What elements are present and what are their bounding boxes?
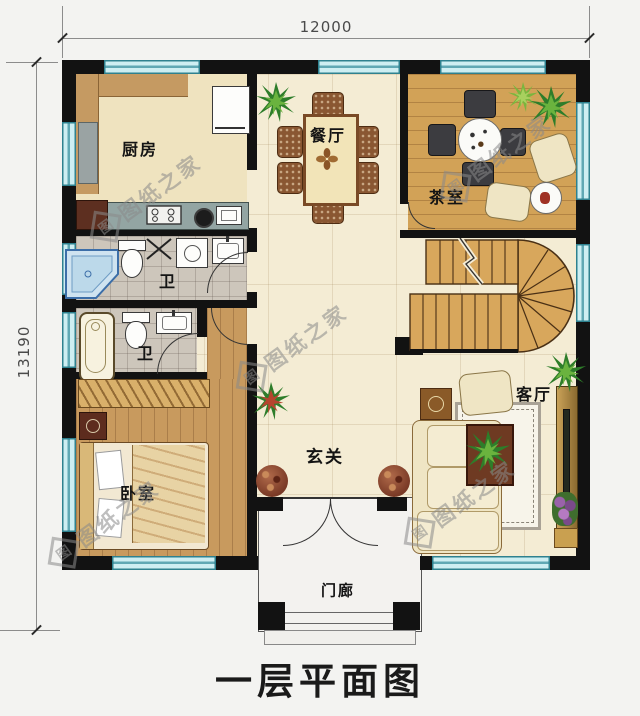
- kitchen-sink: [216, 206, 242, 225]
- wall-hall-west-a: [247, 228, 257, 252]
- entry-shrub: [256, 465, 288, 497]
- living-armchair: [458, 369, 514, 416]
- dimension-ext-left-top: [6, 62, 58, 63]
- window-tea-right: [576, 102, 590, 200]
- staircase: [408, 238, 576, 360]
- wall-entry-jamb-right: [377, 497, 407, 511]
- entry-shrub: [378, 465, 410, 497]
- bath-upper-label: 卫: [159, 268, 177, 292]
- dining-chair: [277, 126, 303, 158]
- tea-armchair: [484, 181, 533, 223]
- dining-chair: [277, 162, 303, 194]
- floor-plan-canvas: 厨房 餐厅 茶室: [0, 0, 640, 716]
- wall-entry-jamb-left: [256, 497, 283, 511]
- hall-console: [554, 528, 578, 548]
- window-bedroom-left: [62, 438, 76, 532]
- bath-lower-label: 卫: [137, 340, 155, 364]
- plan-title: 一层平面图: [215, 651, 425, 705]
- dining-label: 餐厅: [310, 122, 346, 146]
- porch-lower-step: [264, 630, 416, 645]
- entry-hall-label: 玄关: [306, 443, 344, 468]
- wall-hall-west-b: [247, 292, 257, 308]
- floor-drain-icon: [146, 238, 172, 260]
- shower-corner: [64, 248, 120, 300]
- window-tea-top: [440, 60, 546, 74]
- porch-column-left: [258, 602, 285, 630]
- living-side-table: [420, 388, 452, 420]
- window-bedroom-bottom: [112, 556, 216, 570]
- window-kitchen-left: [62, 122, 76, 186]
- wall-bath-lower-east-a: [197, 308, 207, 337]
- toilet-upper-bowl: [121, 249, 143, 278]
- bath-lower-sink: [156, 312, 192, 334]
- tea-chair: [428, 124, 456, 156]
- kitchen-cabinet-left: [78, 122, 98, 184]
- dimension-line-left: [36, 62, 37, 630]
- dimension-left-value: 13190: [15, 326, 33, 379]
- table-centerpiece: [316, 148, 338, 170]
- window-kitchen-top: [104, 60, 200, 74]
- window-stairs-right: [576, 244, 590, 322]
- window-living-bottom: [432, 556, 550, 570]
- kitchen-wok-burner: [194, 208, 214, 228]
- tea-chair: [464, 90, 496, 118]
- wardrobe: [78, 379, 210, 408]
- dimension-top-value: 12000: [300, 18, 353, 36]
- nightstand: [79, 412, 107, 440]
- kitchen-label: 厨房: [122, 136, 158, 160]
- dimension-ext-top-right: [589, 6, 590, 58]
- washing-machine: [176, 238, 208, 268]
- porch-column-right: [393, 602, 420, 630]
- wall-tea-west: [400, 74, 408, 204]
- wall-bath-divider: [62, 300, 257, 308]
- flower-box: [552, 492, 578, 526]
- dimension-ext-left-bottom: [0, 630, 60, 631]
- tea-side-table: [530, 182, 562, 214]
- watermark-logo-icon: 图: [90, 211, 122, 243]
- fridge: [212, 86, 250, 134]
- plant-icon: [256, 82, 296, 122]
- watermark-logo-icon: 图: [404, 517, 436, 549]
- dimension-ext-top-left: [62, 6, 63, 58]
- dimension-line-top: [62, 38, 590, 39]
- wall-tea-bottom: [400, 230, 590, 238]
- bathtub: [79, 312, 115, 382]
- window-bath-lower-left: [62, 312, 76, 368]
- porch-label: 门廊: [321, 580, 355, 601]
- watermark-logo-icon: 图: [440, 171, 472, 203]
- living-room-label: 客厅: [516, 381, 552, 405]
- porch-step: [266, 612, 412, 624]
- watermark-logo-icon: 图: [48, 537, 80, 569]
- window-dining-top: [318, 60, 400, 74]
- watermark-logo-icon: 图: [236, 361, 268, 393]
